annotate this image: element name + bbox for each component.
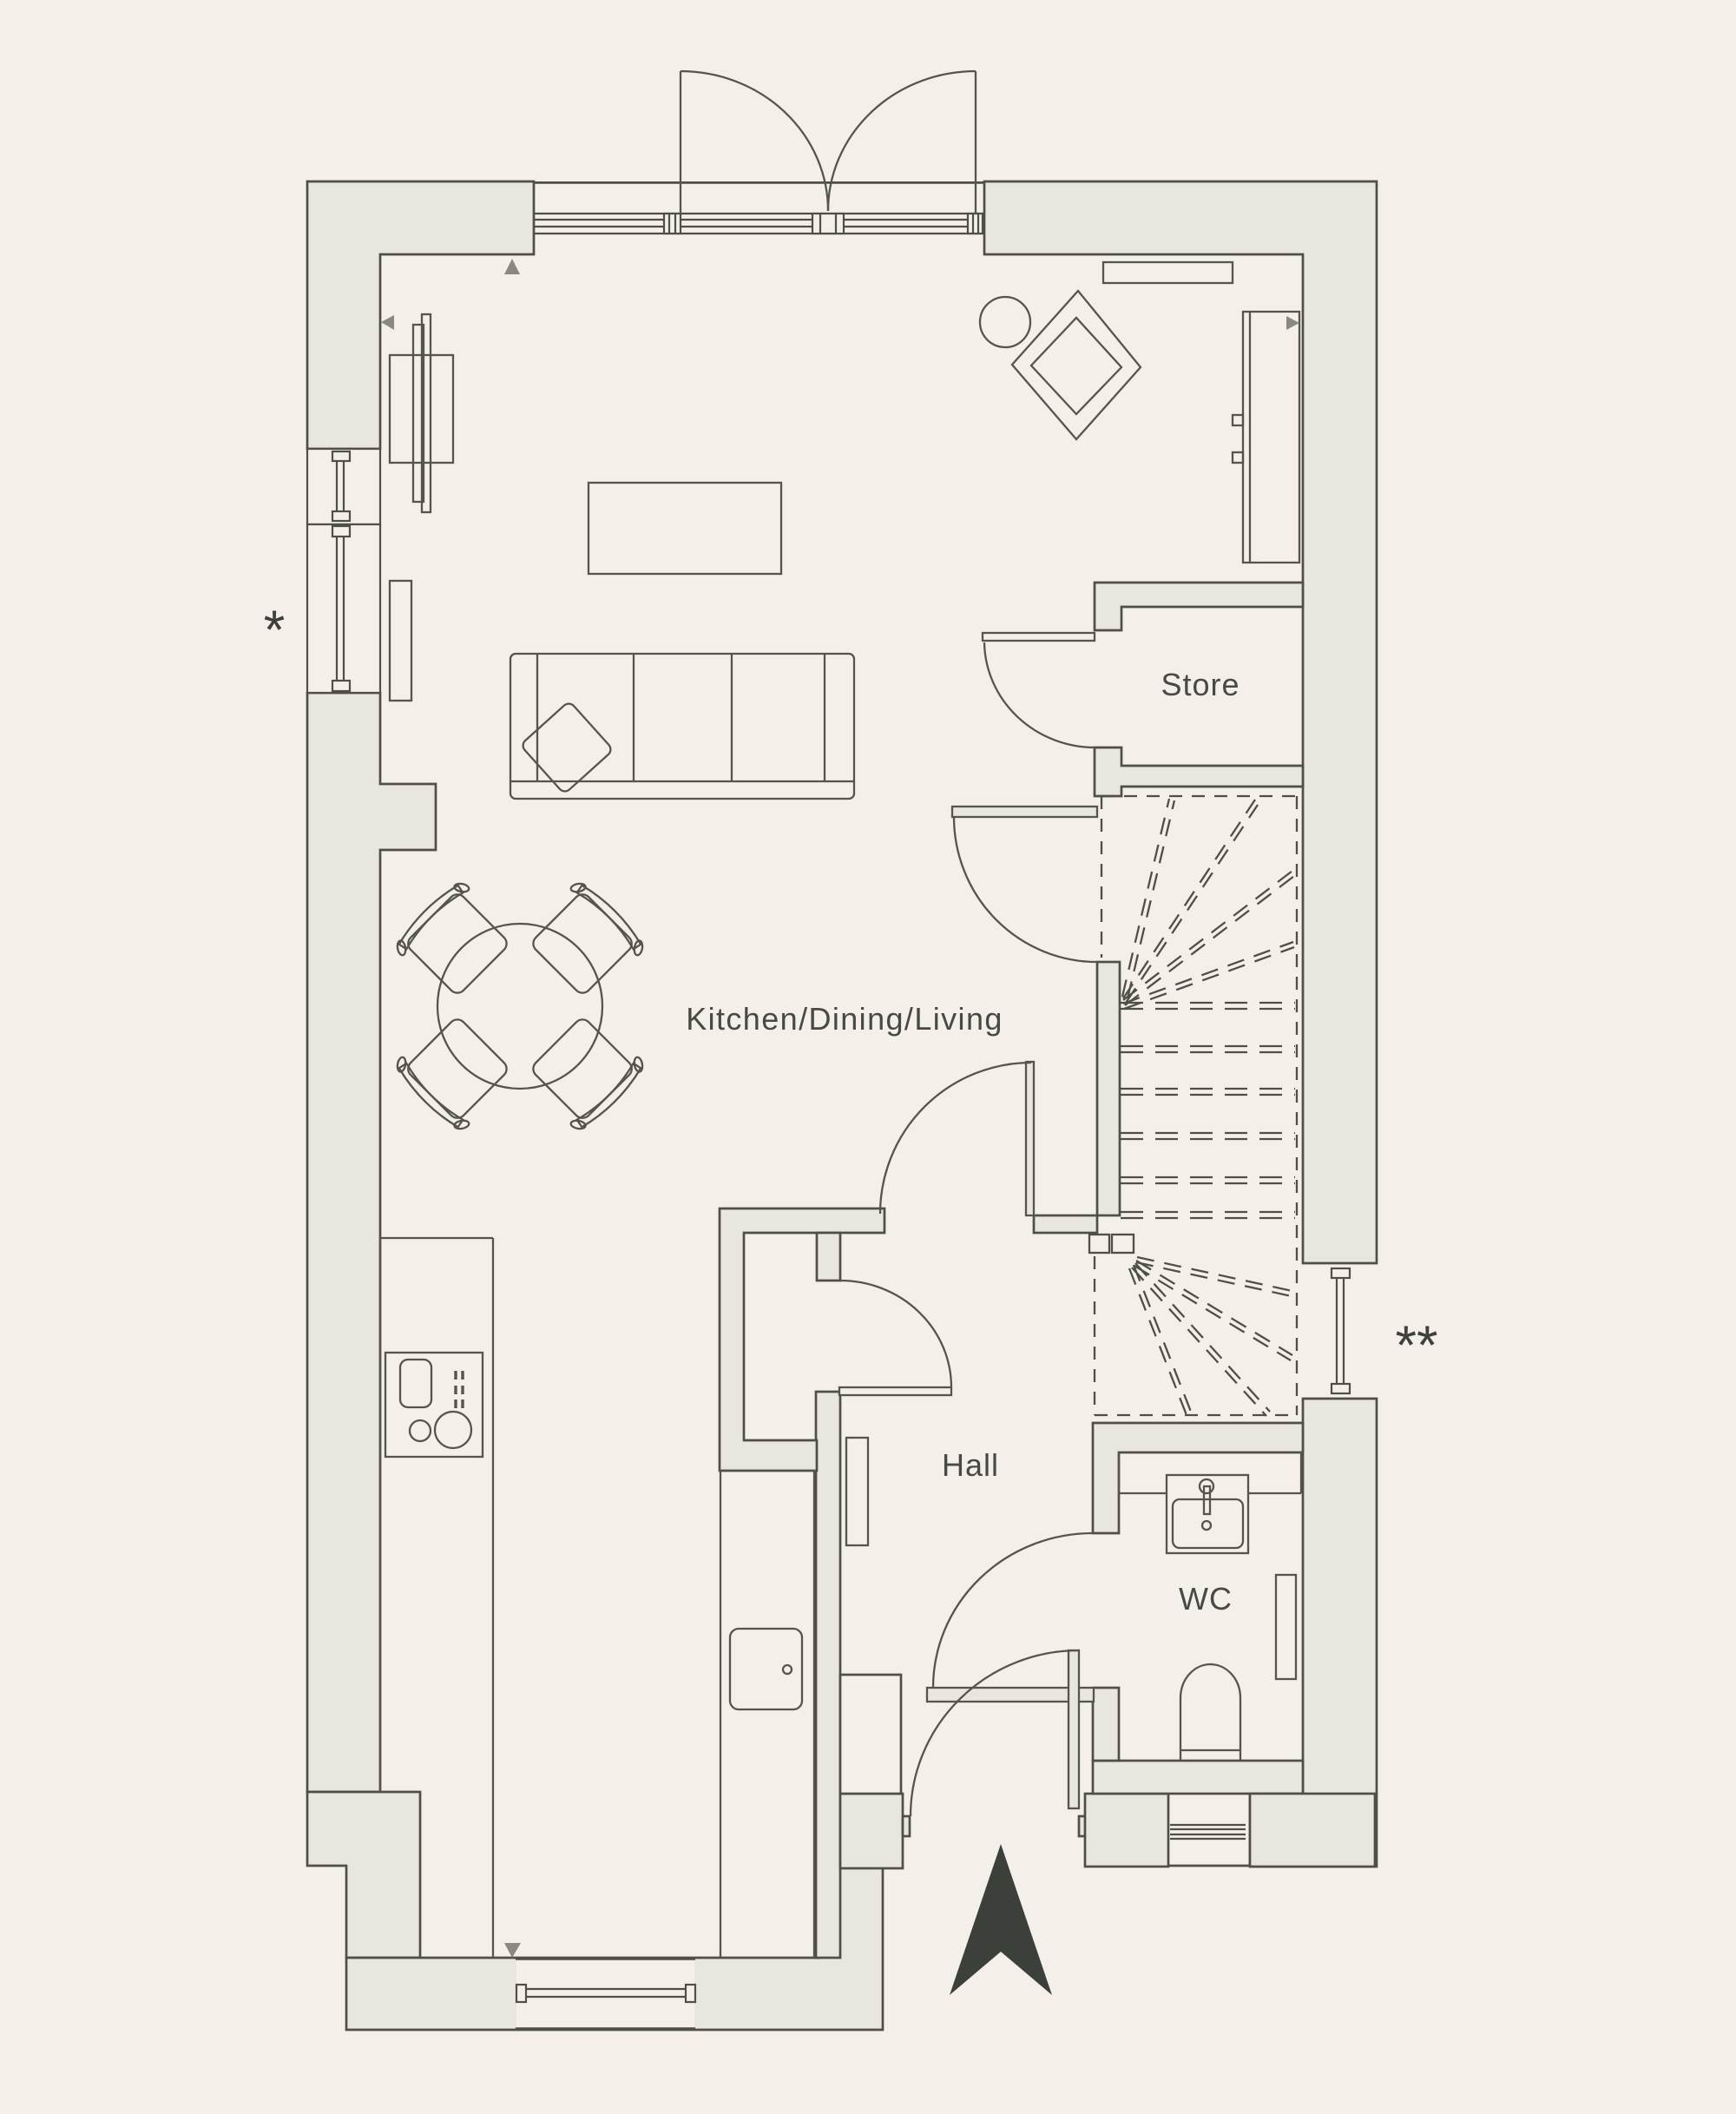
svg-text:Hall: Hall bbox=[942, 1447, 999, 1483]
svg-text:Kitchen/Dining/Living: Kitchen/Dining/Living bbox=[686, 1001, 1003, 1037]
svg-text:Store: Store bbox=[1161, 667, 1240, 702]
svg-text:*: * bbox=[264, 600, 286, 661]
svg-text:WC: WC bbox=[1179, 1581, 1233, 1617]
svg-text:**: ** bbox=[1395, 1315, 1437, 1376]
